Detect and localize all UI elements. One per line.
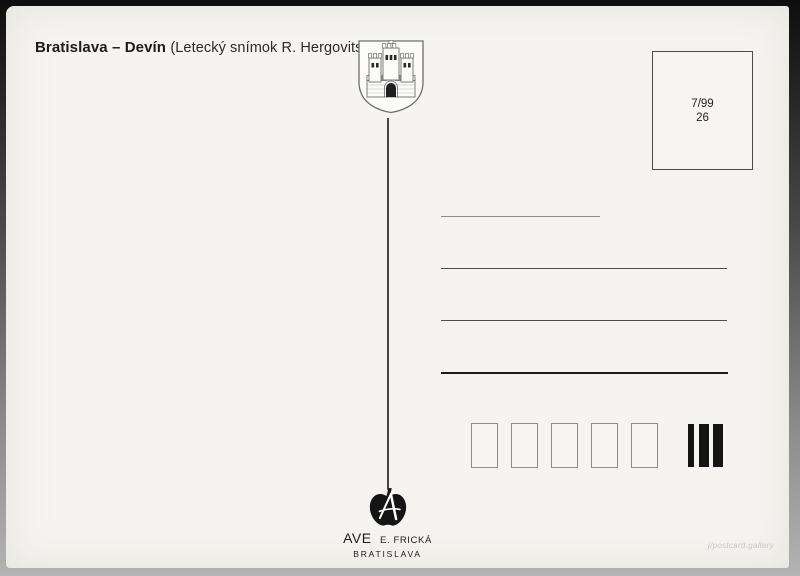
stamp-edition: 7/99 — [691, 97, 713, 111]
postcard-back: Bratislava – Devín (Letecký snímok R. He… — [6, 6, 789, 568]
publisher-block: AVE E. FRICKÁ BRATISLAVA — [320, 487, 455, 559]
address-line-3 — [441, 320, 727, 321]
sorting-bar-2 — [699, 424, 709, 467]
title-caption: (Letecký snímok R. Hergovits) — [170, 40, 367, 56]
watermark-text: j/postcard.gallery — [708, 541, 774, 550]
postal-code-box-4 — [591, 423, 618, 468]
publisher-name-row: AVE E. FRICKÁ — [320, 530, 455, 548]
publisher-name: AVE — [343, 530, 371, 546]
apple-logo-icon — [368, 487, 408, 529]
postal-code-box-5 — [631, 423, 658, 468]
publisher-person: E. FRICKÁ — [380, 535, 432, 546]
sorting-bar-3 — [713, 424, 723, 467]
bratislava-coat-of-arms-icon — [356, 38, 426, 120]
stamp-number: 26 — [696, 111, 709, 125]
address-line-4 — [441, 372, 728, 374]
sorting-bar-1 — [688, 424, 694, 467]
postal-code-box-2 — [511, 423, 538, 468]
postcard-title: Bratislava – Devín (Letecký snímok R. He… — [35, 39, 367, 56]
postal-code-box-3 — [551, 423, 578, 468]
address-line-1 — [441, 216, 600, 217]
divider-line — [387, 118, 389, 490]
postal-code-box-1 — [471, 423, 498, 468]
stamp-box: 7/99 26 — [652, 51, 753, 170]
publisher-city: BRATISLAVA — [320, 549, 455, 559]
address-line-2 — [441, 268, 727, 269]
title-place: Bratislava – Devín — [35, 39, 166, 56]
